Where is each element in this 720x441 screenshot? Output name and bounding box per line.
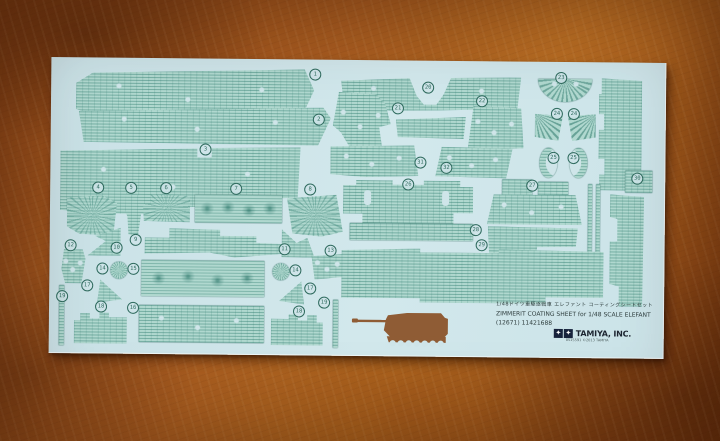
part-number-badge: 24 <box>551 108 563 120</box>
part-number-badge: 12 <box>65 239 77 251</box>
photo-background: 1234567891011121314141516171718181919202… <box>0 0 720 441</box>
part-number-badge: 22 <box>476 95 488 107</box>
sheet-part <box>79 105 331 145</box>
star-icon: ✦ <box>554 328 563 337</box>
part-number-badge: 26 <box>402 178 414 190</box>
part-number-badge: 17 <box>304 282 316 294</box>
part-number-badge: 14 <box>96 262 108 274</box>
tank-silhouette-icon <box>351 306 451 353</box>
sheet-part <box>97 280 122 303</box>
tamiya-twin-star-logo-icon: ✦✦ <box>554 328 573 337</box>
product-title-english: ZIMMERIT COATING SHEET for 1/48 SCALE EL… <box>496 310 653 319</box>
sheet-part <box>330 145 418 178</box>
part-number-badge: 25 <box>567 152 579 164</box>
part-number-badge: 3 <box>199 143 211 155</box>
part-number-badge: 27 <box>526 180 538 192</box>
sheet-part <box>341 248 604 305</box>
part-number-badge: 6 <box>160 182 172 194</box>
part-number-badge: 14 <box>289 264 301 276</box>
part-number-badge: 19 <box>318 297 330 309</box>
sheet-part <box>110 262 127 279</box>
part-number-badge: 8 <box>304 183 316 195</box>
part-number-badge: 20 <box>422 82 434 94</box>
sheet-part <box>145 228 290 259</box>
sheet-part <box>74 310 127 344</box>
brand-code: 0515591 <box>566 338 582 342</box>
part-number-badge: 23 <box>555 72 567 84</box>
item-number: (12671) 11421688 <box>496 319 653 328</box>
part-number-badge: 18 <box>95 300 107 312</box>
parts-layout <box>51 57 666 63</box>
part-number-badge: 1 <box>309 69 321 81</box>
part-number-badge: 2 <box>313 114 325 126</box>
sheet-part <box>311 254 344 280</box>
part-number-badge: 25 <box>547 152 559 164</box>
sheet-part <box>350 223 473 241</box>
part-number-badge: 24 <box>568 108 580 120</box>
part-number-badge: 17 <box>81 279 93 291</box>
sheet-part <box>609 194 644 306</box>
brand-subtext: 0515591 ©2013 TAMIYA <box>566 338 653 343</box>
sheet-part <box>333 300 338 348</box>
sheet-part <box>125 194 142 236</box>
product-title-japanese: 1/48ドイツ重駆逐戦車 エレファント コーティングシートセット <box>496 300 653 309</box>
sheet-part <box>272 263 289 280</box>
sheet-part <box>596 184 601 254</box>
part-number-badge: 31 <box>414 157 426 169</box>
zimmerit-coating-sheet: 1234567891011121314141516171718181919202… <box>49 57 667 359</box>
product-info-block: 1/48ドイツ重駆逐戦車 エレファント コーティングシートセット ZIMMERI… <box>351 299 653 355</box>
copyright-text: ©2013 TAMIYA <box>582 338 608 342</box>
part-number-badge: 10 <box>111 242 123 254</box>
part-number-badge: 28 <box>470 224 482 236</box>
sheet-part <box>588 184 593 254</box>
part-number-badge: 9 <box>130 234 142 246</box>
sheet-part <box>396 116 466 139</box>
sheet-part <box>279 281 304 304</box>
sheet-part <box>139 305 264 343</box>
sheet-part <box>67 195 117 235</box>
part-number-badge: 21 <box>392 102 404 114</box>
sheet-part <box>61 249 85 283</box>
part-number-badge: 29 <box>476 239 488 251</box>
part-number-badge: 32 <box>440 162 452 174</box>
sheet-part <box>195 194 282 223</box>
part-number-badge: 15 <box>127 263 139 275</box>
sheet-part <box>468 106 524 151</box>
part-number-badge: 4 <box>92 181 104 193</box>
sheet-part <box>141 260 264 297</box>
part-number-badge: 7 <box>230 183 242 195</box>
part-number-badge: 5 <box>125 182 137 194</box>
part-number-badge: 11 <box>279 243 291 255</box>
part-number-badge: 19 <box>56 290 68 302</box>
part-number-badge: 30 <box>631 173 643 185</box>
sheet-part <box>487 194 582 225</box>
part-number-badge: 16 <box>127 302 139 314</box>
part-number-layer: 1234567891011121314141516171718181919202… <box>51 57 666 63</box>
star-icon: ✦ <box>564 328 573 337</box>
sheet-part <box>287 194 343 237</box>
part-number-badge: 18 <box>293 305 305 317</box>
part-number-badge: 13 <box>325 245 337 257</box>
